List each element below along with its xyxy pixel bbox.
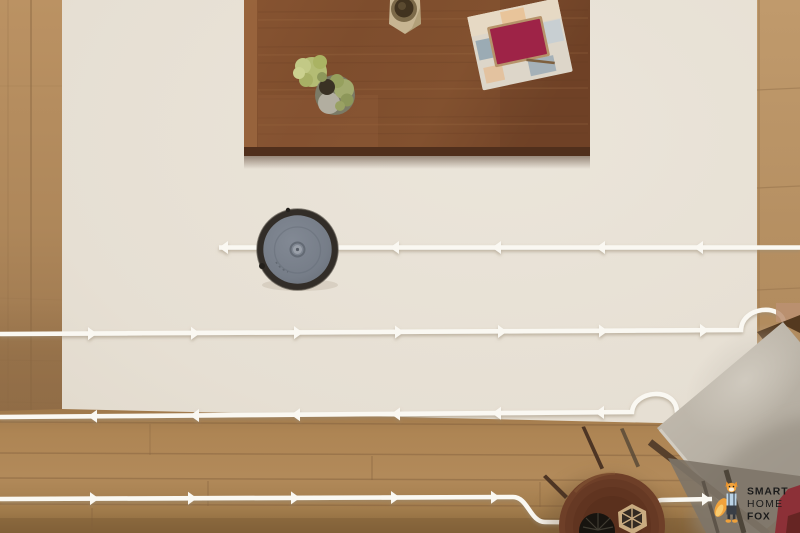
svg-text:SMART: SMART bbox=[747, 487, 788, 498]
svg-text:FOX: FOX bbox=[747, 512, 771, 523]
svg-text:HOME: HOME bbox=[747, 499, 783, 510]
